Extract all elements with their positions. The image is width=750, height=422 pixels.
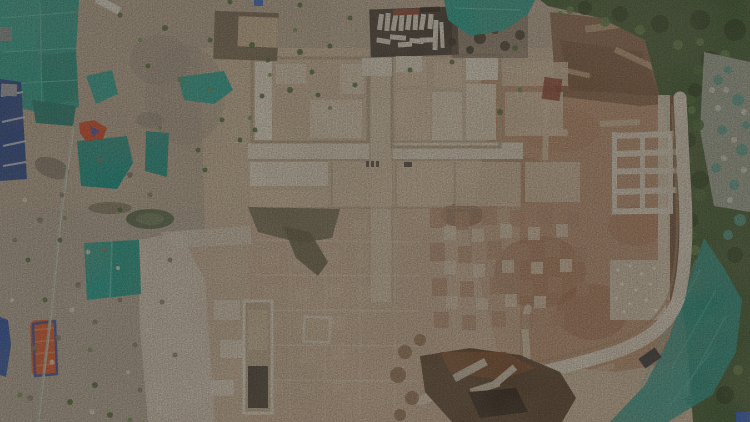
aerial-photo [0, 0, 750, 422]
film-grain-overlay [0, 0, 750, 422]
aerial-photo-frame [0, 0, 750, 422]
